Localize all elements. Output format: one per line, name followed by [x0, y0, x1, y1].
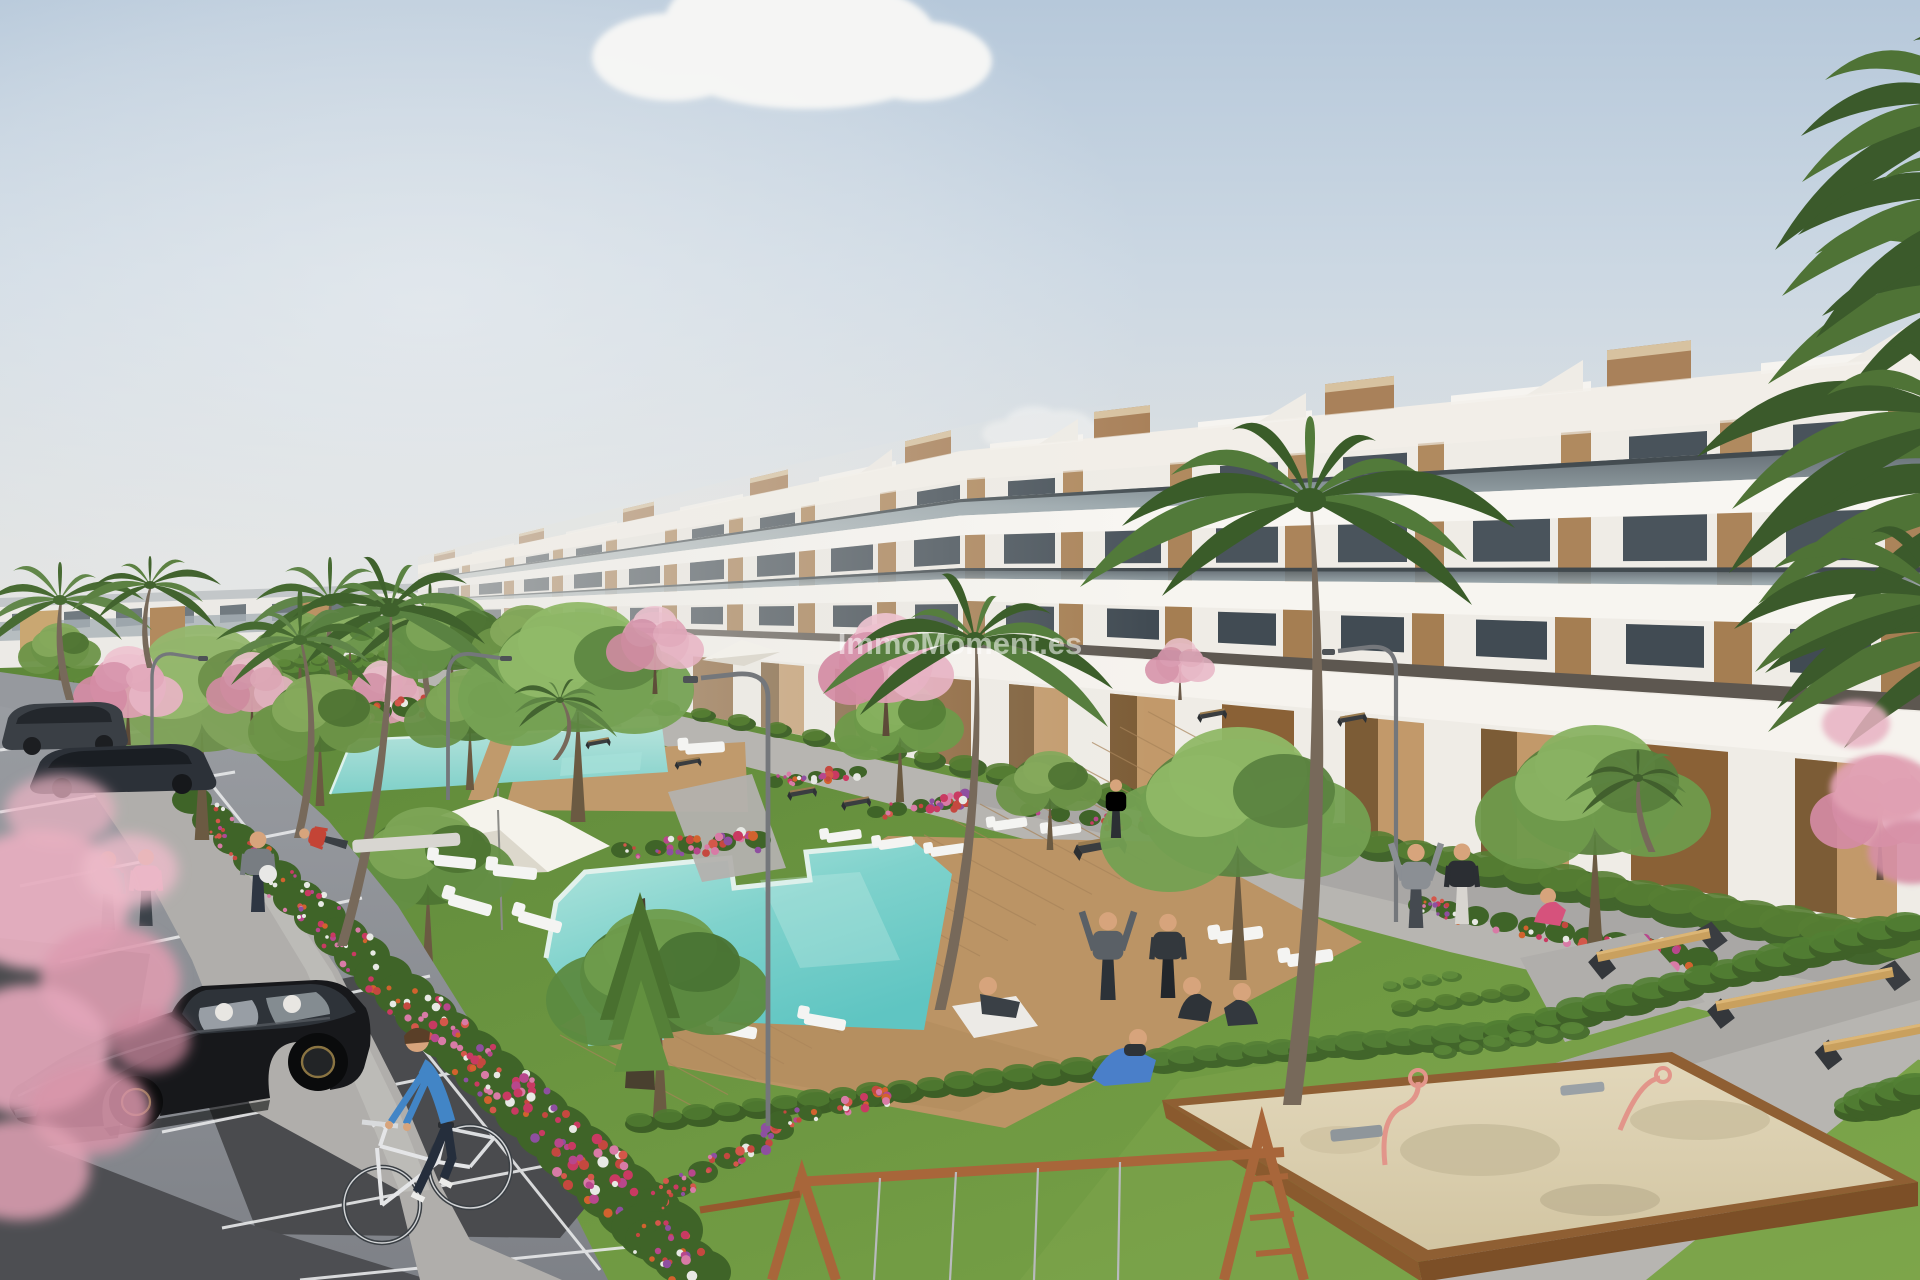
- svg-text:ImmoMoment.es: ImmoMoment.es: [838, 626, 1083, 661]
